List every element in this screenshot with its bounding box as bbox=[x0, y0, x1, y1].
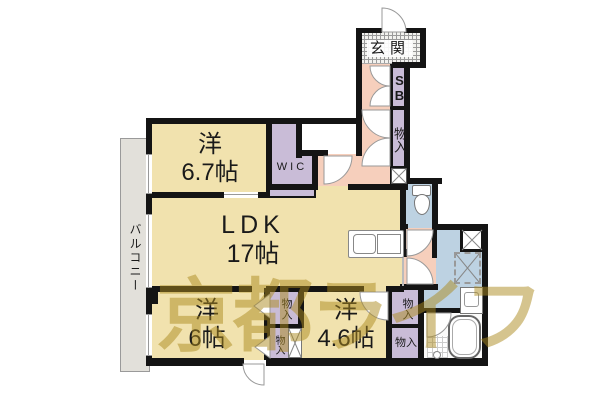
room-size: 17帖 bbox=[150, 240, 356, 269]
room-type: 洋 bbox=[300, 297, 392, 325]
wall-segment bbox=[432, 178, 438, 230]
shower-drain-icon bbox=[433, 351, 441, 359]
kitchen-stove-icon bbox=[377, 234, 401, 254]
vanity-basin-icon bbox=[464, 292, 479, 307]
ldk-label: LDK 17帖 bbox=[150, 211, 356, 269]
room-size: 6.7帖 bbox=[150, 159, 270, 187]
wall-segment bbox=[266, 358, 488, 366]
hallway-extension bbox=[314, 154, 360, 186]
washroom-ps-box bbox=[460, 228, 484, 252]
floor-plan: 玄関 SB 物入 WIC 洋 6.7帖 LDK 17帖 バルコニー 洋 6帖 洋… bbox=[0, 0, 600, 400]
wall-segment bbox=[146, 118, 362, 124]
wall-segment bbox=[146, 358, 244, 366]
bedroom-67-label: 洋 6.7帖 bbox=[150, 131, 270, 186]
room-size: 6帖 bbox=[150, 325, 264, 353]
hall-storage-label: 物入 bbox=[392, 118, 406, 162]
kitchen-sink-icon bbox=[353, 234, 376, 254]
wall-segment bbox=[348, 184, 408, 190]
ldk-hall-door-line bbox=[402, 254, 404, 286]
wall-segment bbox=[150, 286, 252, 292]
wall-segment bbox=[266, 286, 364, 292]
room-type: LDK bbox=[150, 211, 356, 240]
entrance-door-swing-icon bbox=[382, 8, 406, 32]
wall-segment bbox=[356, 28, 382, 33]
wall-segment bbox=[432, 230, 437, 258]
room-type: 洋 bbox=[150, 131, 270, 159]
bedroom-46-label: 洋 4.6帖 bbox=[300, 297, 392, 352]
bedroom-6-label: 洋 6帖 bbox=[150, 297, 264, 352]
balcony-label: バルコニー bbox=[127, 210, 141, 305]
bathtub-inner-line bbox=[452, 319, 477, 355]
wic-label: WIC bbox=[270, 161, 314, 174]
sliding-door bbox=[224, 192, 258, 198]
shoebox-label: SB bbox=[392, 71, 406, 105]
hall-ps-box bbox=[391, 168, 407, 184]
exterior-door-swing-icon bbox=[243, 364, 264, 385]
hallway-column bbox=[360, 62, 392, 186]
closet-46-lower-label: 物入 bbox=[390, 337, 422, 350]
wall-segment bbox=[400, 224, 408, 229]
closet-6-lower-label: 物入 bbox=[272, 331, 284, 358]
washer-pan-icon bbox=[454, 252, 481, 284]
entrance-label: 玄関 bbox=[360, 40, 420, 57]
room-size: 4.6帖 bbox=[300, 325, 392, 353]
entrance-step-line bbox=[362, 63, 392, 64]
closet-ldk bbox=[268, 188, 316, 198]
wall-segment bbox=[388, 324, 422, 328]
closet-46-upper-label: 物入 bbox=[399, 294, 413, 324]
room-type: 洋 bbox=[150, 297, 264, 325]
closet-6-upper-label: 物入 bbox=[278, 294, 292, 324]
wall-segment bbox=[146, 192, 224, 198]
